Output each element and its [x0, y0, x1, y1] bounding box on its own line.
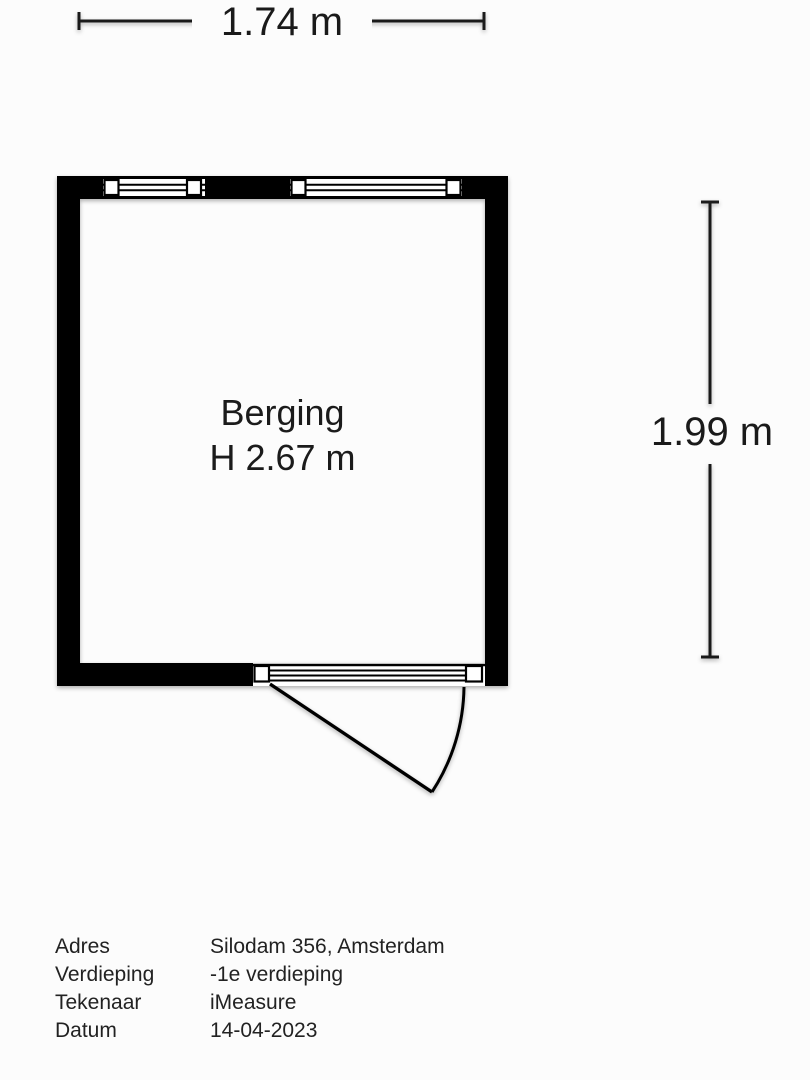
info-label-adres: Adres	[55, 933, 210, 961]
width-dimension-label: 1.74 m	[192, 2, 372, 42]
floorplan-page: 1.74 m 1.99 m Berging H 2.67 m Adres Sil…	[0, 0, 810, 1080]
door-leaf	[270, 684, 432, 792]
floorplan-drawing	[0, 0, 810, 1080]
info-table: Adres Silodam 356, Amsterdam Verdieping …	[55, 933, 445, 1045]
door-swing-icon	[270, 684, 464, 792]
info-row-adres: Adres Silodam 356, Amsterdam	[55, 933, 445, 961]
info-value-datum: 14-04-2023	[210, 1017, 317, 1045]
info-label-datum: Datum	[55, 1017, 210, 1045]
door-sidelight-window-icon	[253, 663, 485, 686]
room-ceiling-height-label: H 2.67 m	[80, 439, 485, 477]
info-row-verdieping: Verdieping -1e verdieping	[55, 961, 445, 989]
wall-right	[485, 176, 508, 686]
window-top-left-icon	[103, 179, 205, 196]
info-value-verdieping: -1e verdieping	[210, 961, 343, 989]
info-label-tekenaar: Tekenaar	[55, 989, 210, 1017]
door-arc	[432, 687, 464, 792]
room-name-label: Berging	[80, 394, 485, 432]
info-row-datum: Datum 14-04-2023	[55, 1017, 445, 1045]
info-value-tekenaar: iMeasure	[210, 989, 296, 1017]
info-row-tekenaar: Tekenaar iMeasure	[55, 989, 445, 1017]
window-top-right-icon	[290, 179, 462, 196]
height-dimension-label: 1.99 m	[622, 412, 802, 452]
info-label-verdieping: Verdieping	[55, 961, 210, 989]
wall-left	[57, 176, 80, 686]
info-value-adres: Silodam 356, Amsterdam	[210, 933, 445, 961]
